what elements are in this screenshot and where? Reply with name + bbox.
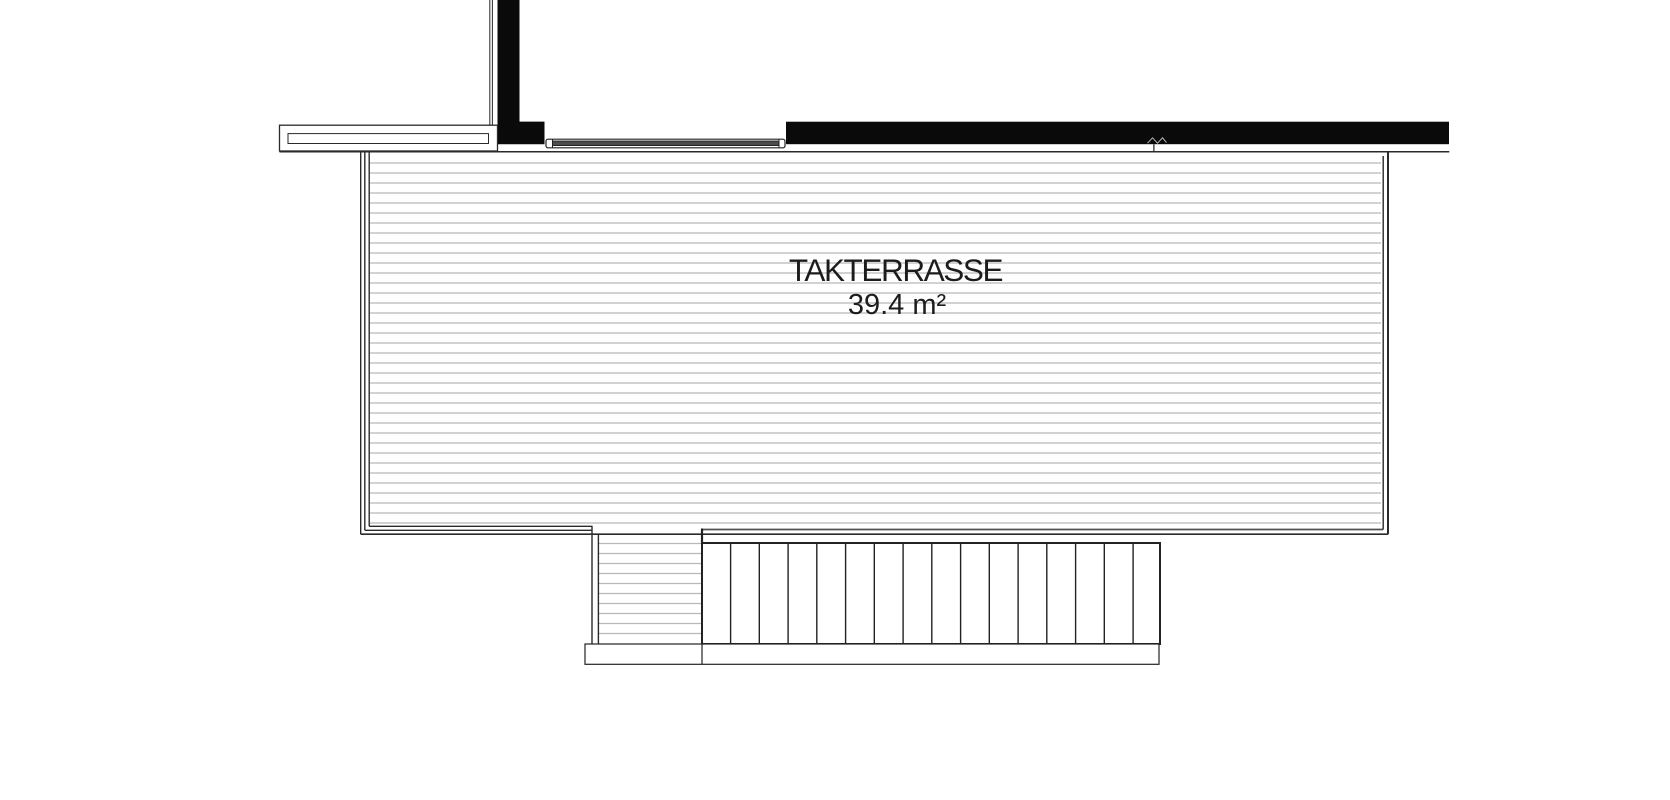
svg-text:TAKTERRASSE: TAKTERRASSE <box>789 252 1003 288</box>
svg-text:39.4 m²: 39.4 m² <box>848 289 947 321</box>
